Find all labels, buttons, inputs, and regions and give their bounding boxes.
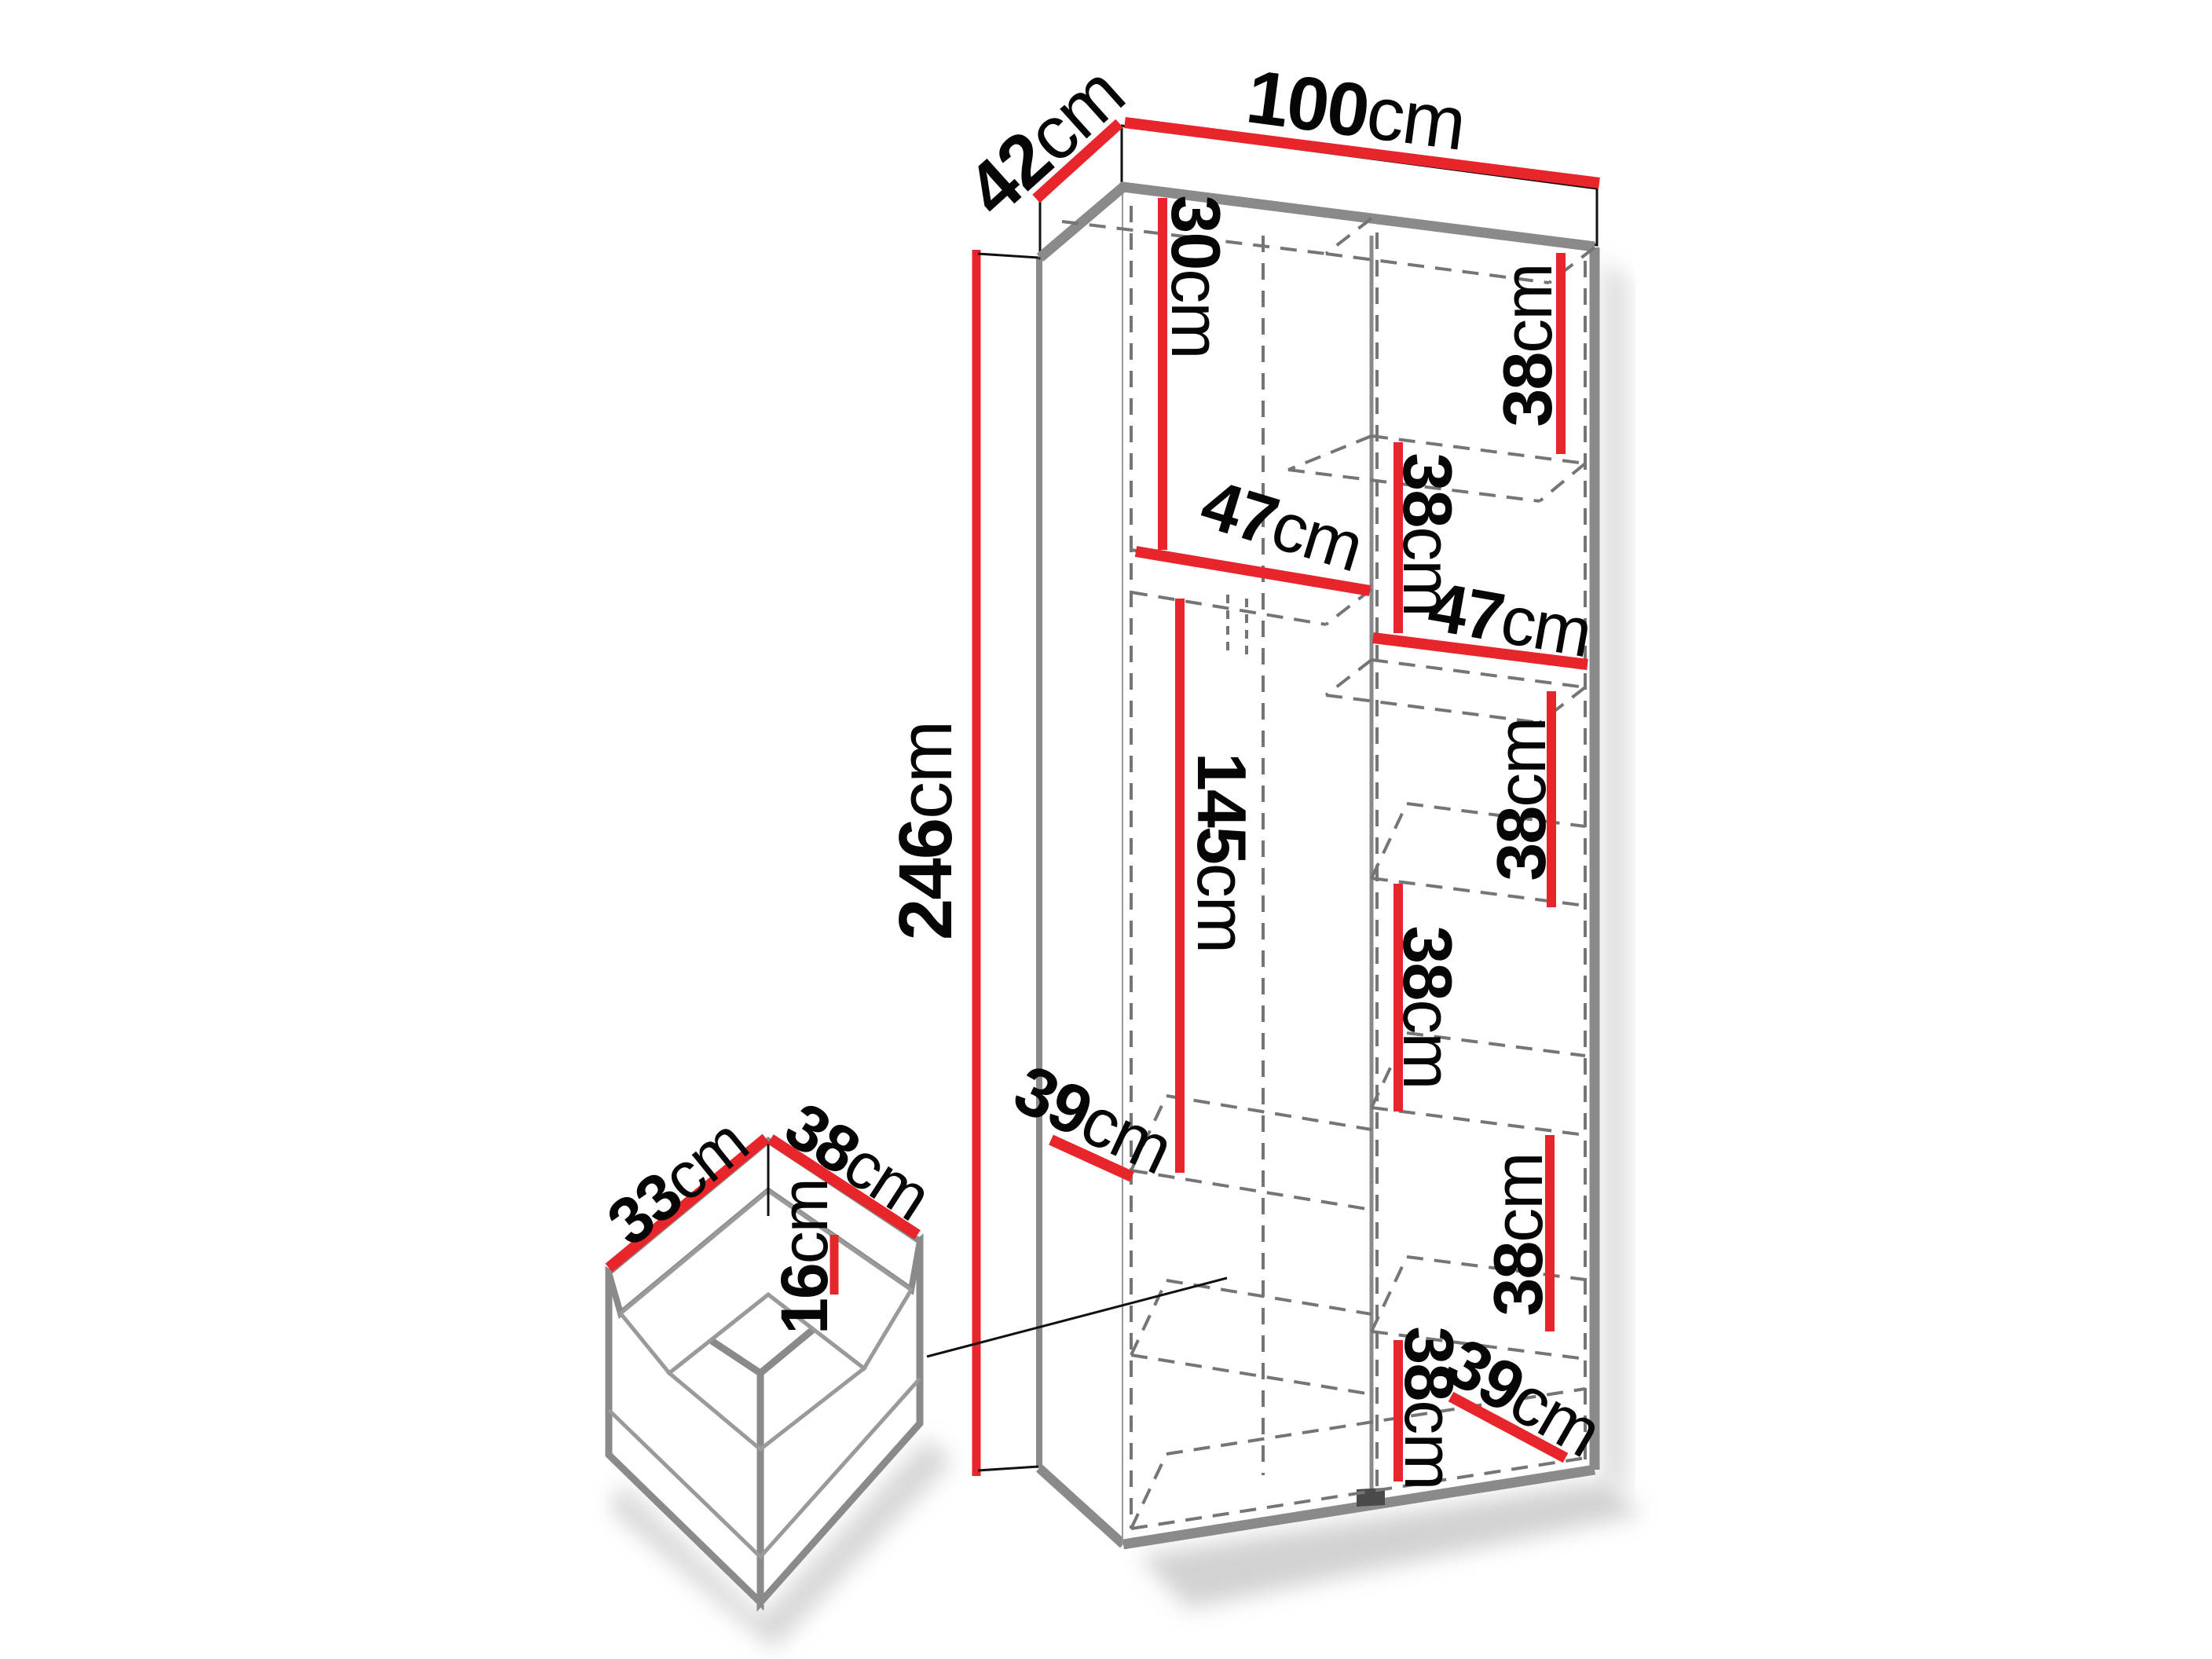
wardrobe-dimension-diagram: 42cm 100cm 246cm 30cm 47cm 145cm 39cm 38…: [0, 0, 2212, 1659]
label-drawer-height-16: 16cm: [767, 1179, 841, 1334]
height-tick-bottom: [978, 1467, 1038, 1470]
label-cell5-38: 38cm: [1479, 1153, 1557, 1316]
label-height-246: 246cm: [884, 722, 968, 940]
height-tick-top: [978, 254, 1038, 258]
label-cell3-38: 38cm: [1482, 718, 1560, 881]
side-panel-left: [1039, 187, 1123, 1544]
label-top-gap-30: 30cm: [1158, 195, 1236, 357]
label-cell1-38: 38cm: [1489, 264, 1566, 427]
label-hanging-145: 145cm: [1184, 753, 1262, 952]
label-cell4-38: 38cm: [1390, 925, 1467, 1088]
diagram-canvas: 42cm 100cm 246cm 30cm 47cm 145cm 39cm 38…: [0, 0, 2212, 1659]
side-panel-face: [1039, 187, 1123, 1544]
wardrobe-right-shadow: [1602, 259, 1628, 1492]
